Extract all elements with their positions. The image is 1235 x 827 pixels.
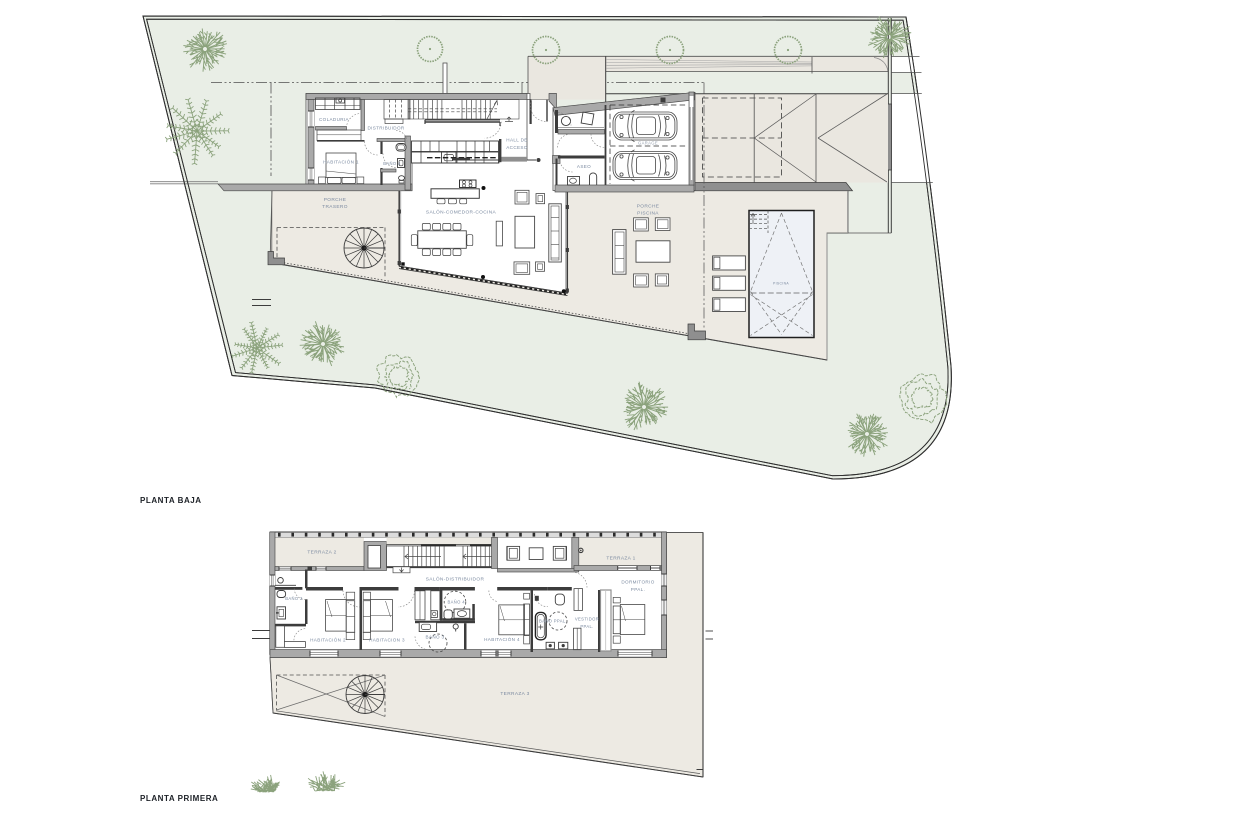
svg-text:BAÑO 4.: BAÑO 4. [448,600,467,605]
svg-text:ASEO: ASEO [577,164,591,169]
svg-text:DISTRIBUIDOR: DISTRIBUIDOR [367,126,404,131]
svg-text:HABITACION 3: HABITACION 3 [369,638,405,643]
svg-text:HABITACIÓN 4: HABITACIÓN 4 [484,636,520,642]
svg-text:PORCHE: PORCHE [637,204,660,210]
svg-text:COLADURIA: COLADURIA [319,117,350,122]
svg-text:TERRAZA 3: TERRAZA 3 [500,691,529,697]
svg-text:PLANTA BAJA: PLANTA BAJA [140,496,202,505]
svg-text:BAÑO 3: BAÑO 3 [426,634,445,640]
svg-text:HABITACIÓN 2: HABITACIÓN 2 [310,637,346,643]
svg-text:HALL DE: HALL DE [506,138,527,143]
svg-text:BAÑO PPAL.: BAÑO PPAL. [539,619,567,624]
svg-text:PISCINA: PISCINA [773,282,789,286]
svg-text:BAÑO 2: BAÑO 2 [285,596,303,601]
svg-text:PLANTA PRIMERA: PLANTA PRIMERA [140,794,218,803]
svg-text:DORMITORIO: DORMITORIO [621,580,654,585]
svg-text:HABITACIÓN 1: HABITACIÓN 1 [323,159,359,165]
svg-text:PORCHE: PORCHE [324,197,347,203]
svg-text:TERRAZA 1: TERRAZA 1 [606,556,635,562]
svg-text:ACCESO: ACCESO [506,145,528,150]
svg-text:TRASERO: TRASERO [322,204,348,210]
svg-text:TERRAZA 2: TERRAZA 2 [307,550,336,556]
svg-text:BAÑO 4: BAÑO 4 [383,161,401,166]
svg-text:PPAL.: PPAL. [631,587,645,592]
svg-text:VESTIDOR: VESTIDOR [575,617,599,622]
svg-text:PPAL.: PPAL. [580,624,593,629]
svg-text:SALÓN-COMEDOR-COCINA: SALÓN-COMEDOR-COCINA [426,209,497,216]
svg-text:PISCINA: PISCINA [637,211,659,217]
svg-text:SALÓN-DISTRIBUIDOR: SALÓN-DISTRIBUIDOR [426,576,485,583]
svg-text:GARAGE: GARAGE [638,140,658,145]
